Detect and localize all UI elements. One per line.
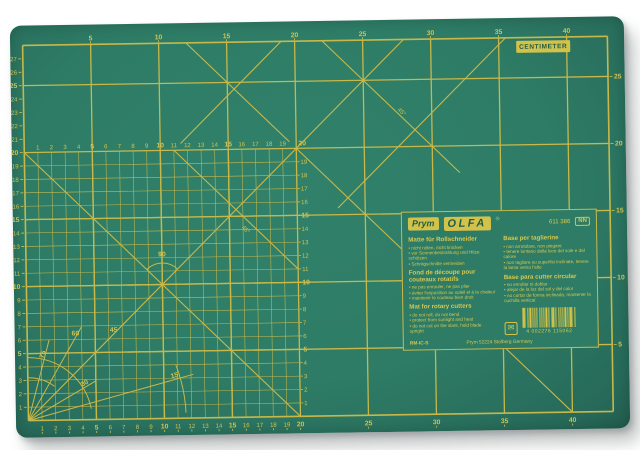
ruler-number: 4 [81, 426, 85, 432]
ruler-number: 24 [11, 97, 18, 103]
ruler-number: 4 [77, 145, 81, 151]
ruler-number: 11 [175, 424, 182, 430]
ruler-number: 6 [18, 338, 22, 344]
ruler-number: 30 [80, 379, 90, 389]
bullet: do not cut on the slant, hold blade upri… [410, 322, 497, 334]
ruler-number: 7 [303, 321, 307, 327]
label-column-right: Base per taglierine non arrotolare, non … [503, 235, 592, 339]
ruler-number: 17 [256, 423, 263, 429]
ruler-number: 18 [12, 178, 19, 184]
barcode-bar [574, 307, 576, 327]
ruler-number: 15 [224, 141, 232, 148]
ruler-number: 15 [223, 33, 231, 40]
ruler-number: 7 [122, 425, 126, 431]
ruler-number: 15 [616, 207, 624, 214]
ruler-number: 12 [13, 258, 20, 264]
lang-head-de: Matte für Rollschneider [408, 236, 495, 244]
ruler-number: 15 [12, 217, 20, 224]
ruler-number: 17 [12, 191, 19, 197]
bullet: non tagliare su superfici inclinate, ten… [504, 258, 591, 270]
ruler-number: 6 [109, 425, 113, 431]
ruler-number: 20 [291, 32, 299, 39]
ruler-number: 13 [202, 424, 209, 430]
ruler-number: 19 [284, 422, 291, 428]
ruler-number: 12 [302, 254, 309, 260]
ruler-number: 1 [41, 426, 45, 432]
ruler-number: 8 [303, 307, 307, 313]
ruler-number: 25 [10, 83, 18, 90]
ruler-number: 30 [433, 419, 441, 426]
ruler-number: 14 [301, 227, 308, 233]
prym-logo: Prym [408, 217, 439, 230]
ruler-number: 13 [198, 143, 205, 149]
ruler-number: 7 [18, 325, 22, 331]
ruler-number: 17 [252, 142, 259, 148]
bullet: maintenir le couteau bien droit [409, 294, 496, 301]
ruler-number: 10 [617, 274, 625, 281]
barcode-bars-icon [522, 307, 576, 328]
ruler-number: 7 [118, 144, 122, 150]
registered-mark-icon: ® [496, 216, 500, 222]
label-columns: Matte für Rollschneider nicht rollen, ni… [408, 235, 592, 341]
ruler-number: 45° [396, 107, 407, 118]
ruler-number: 1 [19, 405, 23, 411]
ruler-number: 25 [359, 31, 367, 38]
lang-head-es: Base para cutter circular [504, 273, 591, 281]
ruler-number: 19 [300, 160, 307, 166]
ruler-number: 8 [136, 425, 140, 431]
ruler-number: 21 [11, 138, 18, 144]
barcode: 4 002276 115062 [522, 307, 576, 335]
barcode-row: ✉ 4 002276 115062 [504, 306, 591, 334]
lang-head-fr: Fond de découpe pour couteaux rotatifs [409, 269, 496, 283]
ruler-number: 3 [304, 374, 308, 380]
ruler-number: 10 [156, 142, 164, 149]
ruler-number: 11 [171, 143, 178, 149]
ruler-number: 2 [19, 392, 23, 398]
lang-head-en: Mat for rotary cutters [409, 304, 496, 312]
centimeter-badge: CENTIMETER [516, 40, 570, 53]
product-label-panel: Prym OLFA ® 611 386 NN Matte für Rollsch… [401, 209, 599, 351]
ruler-number: 25 [614, 73, 622, 80]
ruler-number: 45 [110, 327, 118, 334]
ruler-number: 10 [161, 423, 169, 430]
ruler-number: 15 [301, 212, 309, 219]
lang-block-it: Base per taglierine non arrotolare, non … [503, 235, 591, 271]
ruler-number: 3 [19, 379, 23, 385]
ruler-number: 35 [501, 418, 509, 425]
ruler-number: 4 [18, 365, 22, 371]
ruler-number: 40 [569, 417, 577, 424]
cutting-mat: 75604530159045°45°5101520253035401234567… [10, 16, 630, 438]
bullet: no cortar de forma inclinada, mantener l… [504, 292, 591, 304]
ruler-number: 16 [238, 142, 245, 148]
ruler-number: 3 [63, 145, 67, 151]
olfa-logo: OLFA [443, 216, 491, 231]
ruler-number: 16 [12, 205, 19, 211]
ruler-number: 30 [427, 30, 435, 37]
label-column-left: Matte für Rollschneider nicht rollen, ni… [408, 236, 497, 340]
ruler-number: 18 [270, 423, 277, 429]
ruler-number: 8 [17, 312, 21, 318]
ruler-number: 90 [158, 251, 166, 258]
barcode-number: 4 002276 115062 [526, 328, 572, 335]
ruler-number: 9 [303, 294, 307, 300]
ruler-number: 27 [10, 57, 17, 63]
ruler-number: 45° [240, 225, 251, 236]
ruler-number: 20 [11, 150, 19, 157]
ruler-number: 14 [211, 143, 218, 149]
ruler-number: 40 [563, 28, 571, 35]
ruler-number: 10 [13, 284, 21, 291]
ruler-number: 6 [104, 144, 108, 150]
ruler-number: 2 [54, 426, 58, 432]
ruler-number: 15 [229, 422, 237, 429]
ruler-number: 20 [615, 140, 623, 147]
protractor: 75604530159045°45° [24, 107, 412, 421]
manufacturer-address: Prym 52224 Stolberg Germany [466, 340, 532, 346]
ruler-number: 1 [304, 401, 308, 407]
ruler-number: 35 [495, 29, 503, 36]
ruler-number: 9 [149, 425, 153, 431]
ruler-number: 1 [36, 145, 40, 151]
ruler-number: 17 [301, 187, 308, 193]
ruler-number: 9 [17, 298, 21, 304]
ruler-number: 18 [266, 142, 273, 148]
bullet: Schrägschnitte vermeiden [409, 260, 496, 267]
lang-block-fr: Fond de découpe pour couteaux rotatifs n… [409, 269, 496, 301]
ruler-number: 20 [298, 140, 306, 147]
ruler-number: 16 [243, 423, 250, 429]
ruler-number: 13 [13, 245, 20, 251]
ruler-number: 10 [155, 34, 163, 41]
ruler-number: 11 [302, 267, 309, 273]
photo-background: 75604530159045°45°5101520253035401234567… [0, 0, 640, 450]
ruler-number: 25 [365, 420, 373, 427]
ruler-number: 5 [89, 35, 93, 42]
lang-block-en: Mat for rotary cutters do not roll, do n… [409, 304, 496, 334]
ruler-number: 2 [304, 388, 308, 394]
ruler-number: 2 [50, 145, 54, 151]
lang-block-de: Matte für Rollschneider nicht rollen, ni… [408, 236, 495, 266]
lang-block-es: Base para cutter circular no enrollar ni… [504, 273, 591, 303]
ruler-number: 19 [12, 164, 19, 170]
envelope-pictogram-icon: ✉ [505, 322, 518, 335]
ruler-number: 22 [11, 124, 18, 130]
ruler-number: 14 [13, 231, 20, 237]
ruler-number: 13 [302, 240, 309, 246]
product-code: RM-IC-S [410, 341, 429, 346]
ruler-number: 9 [145, 144, 149, 150]
ruler-number: 5 [18, 351, 22, 358]
ruler-number: 6 [303, 334, 307, 340]
item-number: 611 386 [549, 219, 570, 225]
ruler-number: 12 [188, 424, 195, 430]
ruler-number: 16 [301, 200, 308, 206]
ruler-number: 10 [302, 279, 310, 286]
ruler-number: 8 [131, 144, 135, 150]
ruler-number: 5 [618, 341, 622, 348]
ruler-number: 23 [11, 111, 18, 117]
ruler-number: 18 [301, 173, 308, 179]
ruler-number: 20 [297, 421, 305, 428]
ruler-number: 5 [303, 346, 307, 353]
ruler-number: 14 [216, 424, 223, 430]
ruler-number: 5 [95, 425, 99, 432]
lang-head-it: Base per taglierine [503, 235, 590, 243]
nn-badge: NN [575, 217, 590, 226]
ruler-number: 4 [304, 361, 308, 367]
ruler-number: 5 [90, 144, 94, 151]
ruler-number: 12 [184, 143, 191, 149]
ruler-number: 11 [14, 272, 21, 278]
ruler-number: 26 [10, 71, 17, 77]
ruler-number: 19 [279, 142, 286, 148]
ruler-number: 3 [68, 426, 72, 432]
ruler-number: 60 [72, 330, 80, 337]
